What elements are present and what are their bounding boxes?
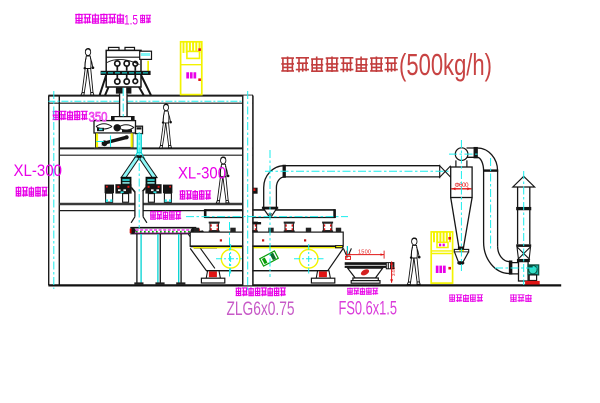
svg-text:(500kg/h): (500kg/h) [399,47,492,82]
svg-text:350: 350 [89,109,108,125]
svg-text:FS0.6x1.5: FS0.6x1.5 [339,299,398,320]
svg-text:XL-300: XL-300 [14,161,63,180]
svg-text:ZLG6x0.75: ZLG6x0.75 [227,299,295,320]
svg-text:XL-300: XL-300 [178,164,226,183]
svg-text:340: 340 [391,267,396,276]
svg-text:1500: 1500 [358,250,371,256]
svg-text:1.5: 1.5 [124,13,138,28]
